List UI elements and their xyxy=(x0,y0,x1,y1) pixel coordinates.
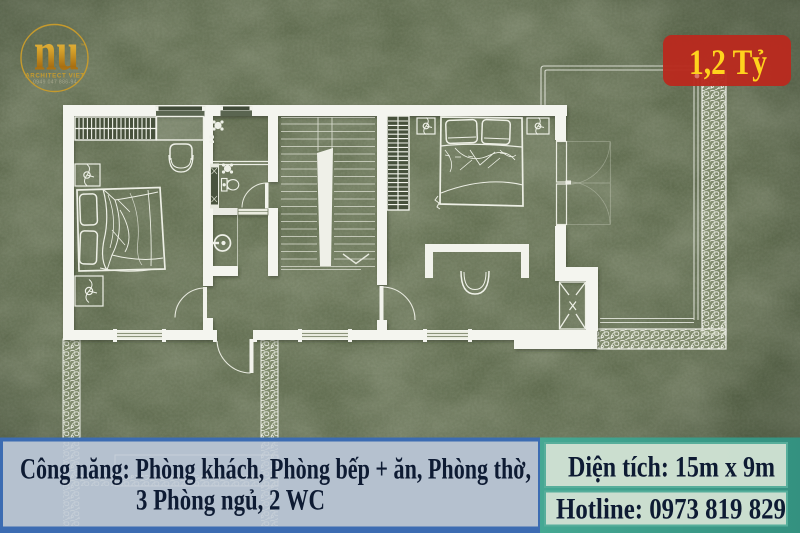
svg-text:3 Phòng ngủ, 2 WC: 3 Phòng ngủ, 2 WC xyxy=(136,484,325,517)
svg-text:™: ™ xyxy=(80,43,85,49)
svg-text:Diện tích: 15m x 9m: Diện tích: 15m x 9m xyxy=(568,451,775,484)
svg-text:Hotline: 0973 819 829: Hotline: 0973 819 829 xyxy=(556,493,786,526)
svg-text:0949 047 886-94: 0949 047 886-94 xyxy=(33,80,77,86)
svg-text:ARCHITECT VIET: ARCHITECT VIET xyxy=(25,73,85,80)
svg-text:1,2 Tỷ: 1,2 Tỷ xyxy=(689,42,767,82)
svg-text:Công năng: Phòng khách, Phòng: Công năng: Phòng khách, Phòng bếp + ăn, … xyxy=(20,453,531,486)
